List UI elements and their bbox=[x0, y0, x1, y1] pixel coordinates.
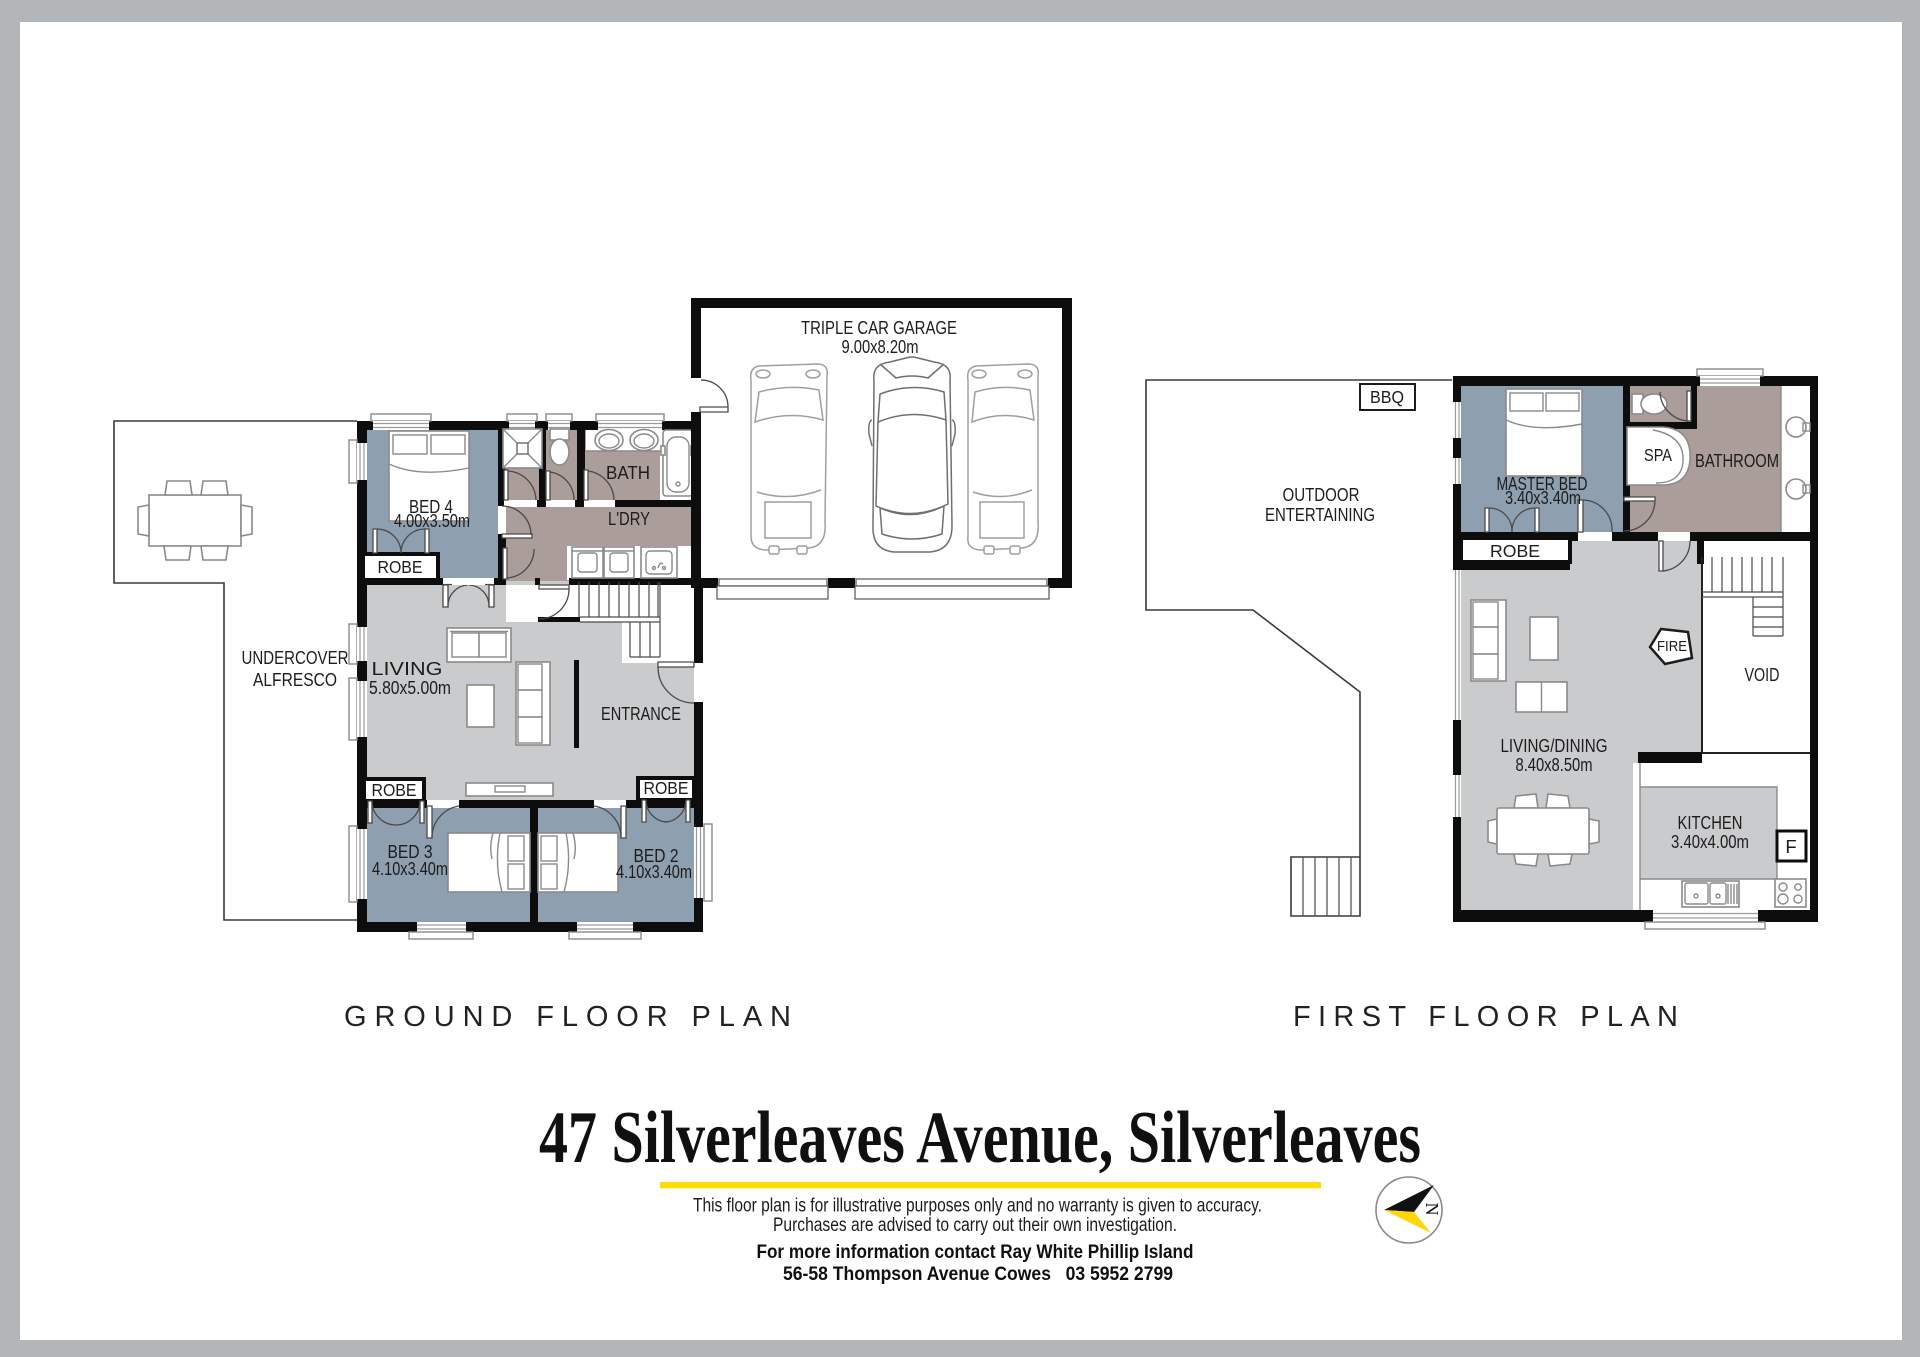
svg-text:VOID: VOID bbox=[1745, 664, 1780, 685]
svg-text:3.40x3.40m: 3.40x3.40m bbox=[1505, 487, 1581, 508]
svg-text:ROBE: ROBE bbox=[644, 778, 689, 798]
svg-text:L'DRY: L'DRY bbox=[608, 508, 650, 529]
svg-text:Purchases are advised to carry: Purchases are advised to carry out their… bbox=[773, 1215, 1177, 1236]
svg-text:GROUND FLOOR PLAN: GROUND FLOOR PLAN bbox=[344, 1001, 791, 1033]
svg-text:5.80x5.00m: 5.80x5.00m bbox=[369, 677, 451, 698]
svg-text:LIVING/DINING: LIVING/DINING bbox=[1501, 735, 1608, 756]
svg-text:ROBE: ROBE bbox=[378, 557, 423, 577]
svg-text:3.40x4.00m: 3.40x4.00m bbox=[1671, 831, 1749, 852]
svg-text:FIRE: FIRE bbox=[1657, 639, 1687, 655]
svg-text:4.10x3.40m: 4.10x3.40m bbox=[616, 861, 692, 882]
svg-text:For more information contact R: For more information contact Ray White P… bbox=[757, 1241, 1194, 1263]
svg-text:ALFRESCO: ALFRESCO bbox=[253, 669, 337, 690]
svg-text:ROBE: ROBE bbox=[372, 780, 417, 800]
svg-text:TRIPLE CAR GARAGE: TRIPLE CAR GARAGE bbox=[801, 317, 957, 338]
svg-text:4.10x3.40m: 4.10x3.40m bbox=[372, 858, 448, 879]
svg-text:FIRST FLOOR PLAN: FIRST FLOOR PLAN bbox=[1293, 1001, 1678, 1033]
svg-text:F: F bbox=[1785, 836, 1796, 857]
svg-text:47 Silverleaves Avenue, Silver: 47 Silverleaves Avenue, Silverleaves bbox=[539, 1097, 1421, 1179]
svg-text:ENTRANCE: ENTRANCE bbox=[601, 703, 681, 724]
svg-text:LIVING: LIVING bbox=[372, 658, 443, 679]
svg-text:KITCHEN: KITCHEN bbox=[1678, 812, 1743, 833]
svg-text:BATHROOM: BATHROOM bbox=[1695, 450, 1779, 471]
svg-text:This floor plan is for illustr: This floor plan is for illustrative purp… bbox=[693, 1196, 1262, 1217]
svg-text:ROBE: ROBE bbox=[1490, 541, 1540, 561]
svg-text:56-58 Thompson Avenue Cowes: 56-58 Thompson Avenue Cowes 03 5952 2799 bbox=[783, 1263, 1173, 1285]
svg-text:N: N bbox=[1422, 1203, 1442, 1216]
svg-text:UNDERCOVER: UNDERCOVER bbox=[242, 647, 349, 668]
svg-text:9.00x8.20m: 9.00x8.20m bbox=[842, 336, 919, 357]
svg-text:8.40x8.50m: 8.40x8.50m bbox=[1516, 754, 1593, 775]
svg-text:OUTDOOR: OUTDOOR bbox=[1283, 484, 1360, 505]
svg-text:BATH: BATH bbox=[606, 462, 650, 483]
svg-text:ENTERTAINING: ENTERTAINING bbox=[1265, 504, 1375, 525]
svg-text:SPA: SPA bbox=[1644, 445, 1672, 465]
svg-text:BBQ: BBQ bbox=[1370, 387, 1404, 407]
svg-text:4.00x3.50m: 4.00x3.50m bbox=[394, 510, 470, 531]
